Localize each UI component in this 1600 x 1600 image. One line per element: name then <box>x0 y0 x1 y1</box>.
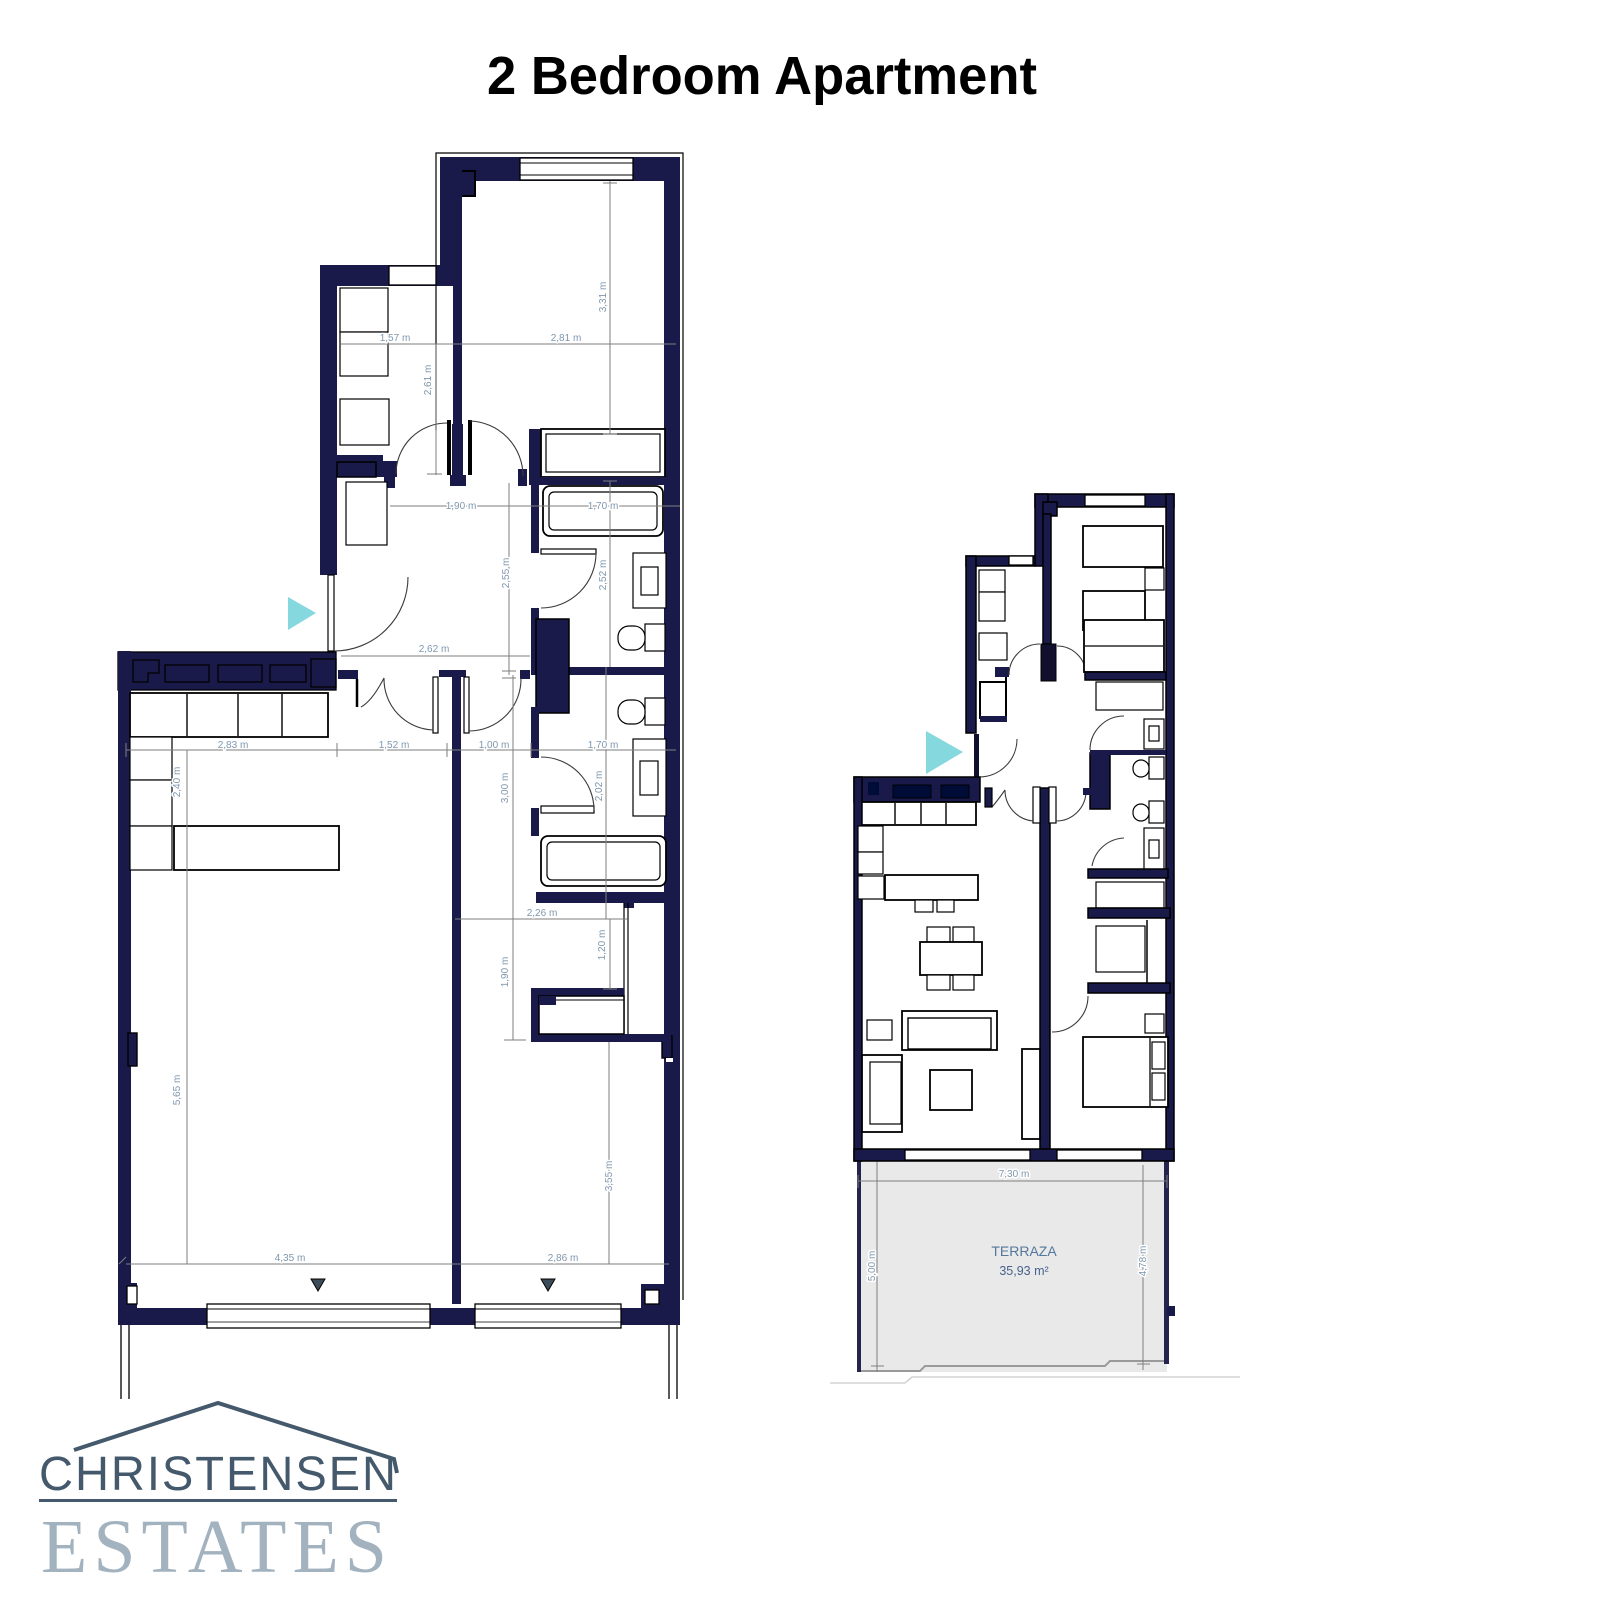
svg-text:1,70 m: 1,70 m <box>588 501 619 512</box>
svg-text:2,02 m: 2,02 m <box>594 771 605 802</box>
svg-text:35,93 m²: 35,93 m² <box>999 1264 1048 1278</box>
svg-text:1,57 m: 1,57 m <box>380 333 411 344</box>
svg-text:3,00 m: 3,00 m <box>500 773 511 804</box>
svg-text:CHRISTENSEN: CHRISTENSEN <box>39 1448 398 1501</box>
svg-text:TERRAZA: TERRAZA <box>991 1243 1057 1259</box>
svg-text:2,40 m: 2,40 m <box>172 767 183 798</box>
svg-text:5,00 m: 5,00 m <box>867 1251 878 1282</box>
svg-text:2,83 m: 2,83 m <box>218 740 249 751</box>
svg-text:2,62 m: 2,62 m <box>419 644 450 655</box>
svg-text:5,65 m: 5,65 m <box>172 1075 183 1106</box>
svg-text:2,52 m: 2,52 m <box>598 560 609 591</box>
svg-text:1,00 m: 1,00 m <box>479 740 510 751</box>
svg-text:2,86 m: 2,86 m <box>548 1253 579 1264</box>
svg-text:ESTATES: ESTATES <box>41 1505 393 1589</box>
svg-text:2,55 m: 2,55 m <box>501 558 512 589</box>
svg-text:3,55 m: 3,55 m <box>604 1161 615 1192</box>
svg-text:3,31 m: 3,31 m <box>598 282 609 313</box>
svg-text:1,90 m: 1,90 m <box>500 957 511 988</box>
svg-text:1,90 m: 1,90 m <box>446 501 477 512</box>
svg-text:4,35 m: 4,35 m <box>275 1253 306 1264</box>
svg-text:1,20 m: 1,20 m <box>597 930 608 961</box>
svg-text:7,30 m: 7,30 m <box>999 1169 1030 1180</box>
svg-text:2,61 m: 2,61 m <box>423 365 434 396</box>
svg-text:4,78 m: 4,78 m <box>1138 1246 1149 1277</box>
svg-text:1,52 m: 1,52 m <box>379 740 410 751</box>
svg-text:2 Bedroom Apartment: 2 Bedroom Apartment <box>487 46 1037 106</box>
svg-text:2,26 m: 2,26 m <box>527 908 558 919</box>
svg-text:1,70 m: 1,70 m <box>588 740 619 751</box>
svg-text:2,81 m: 2,81 m <box>551 333 582 344</box>
